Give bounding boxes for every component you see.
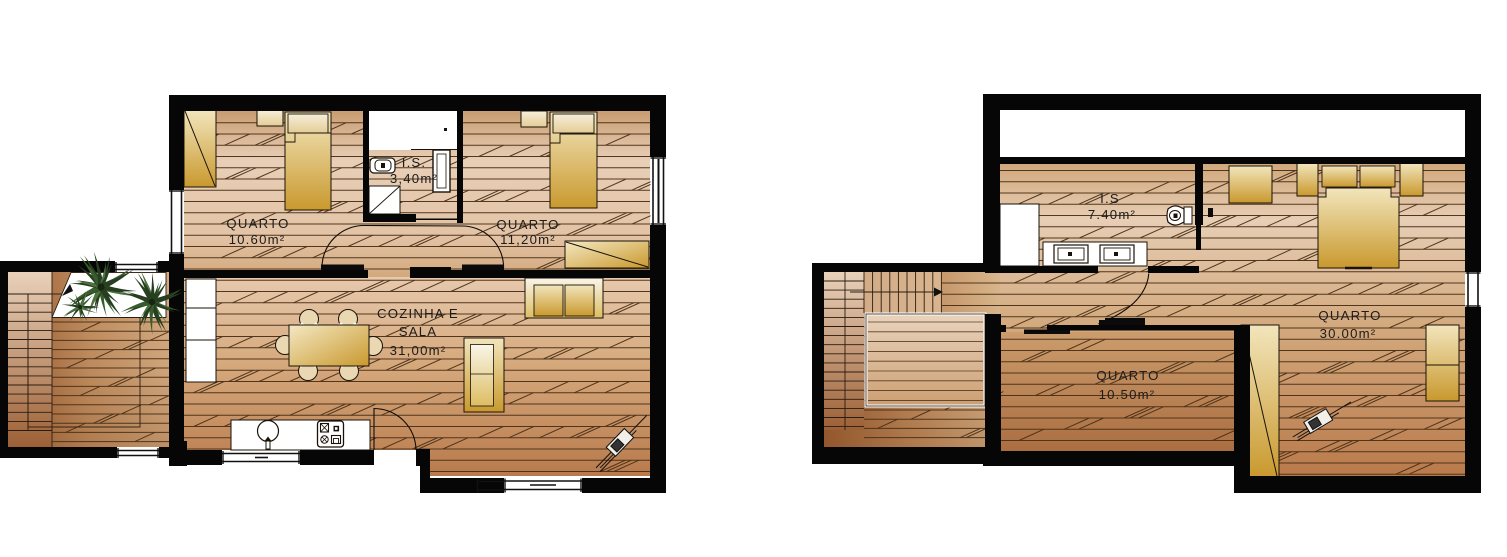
svg-text:QUARTO: QUARTO: [1096, 368, 1159, 383]
svg-text:SALA: SALA: [399, 324, 438, 339]
svg-text:I.S.: I.S.: [402, 155, 427, 170]
svg-text:7.40m²: 7.40m²: [1088, 207, 1136, 222]
svg-text:I.S: I.S: [1100, 191, 1120, 206]
svg-text:10.60m²: 10.60m²: [229, 232, 286, 247]
svg-text:QUARTO: QUARTO: [226, 216, 289, 231]
svg-text:3,40m²: 3,40m²: [390, 171, 438, 186]
svg-text:31,00m²: 31,00m²: [390, 343, 447, 358]
svg-text:11,20m²: 11,20m²: [500, 232, 556, 247]
svg-text:30.00m²: 30.00m²: [1320, 326, 1377, 341]
svg-text:COZINHA E: COZINHA E: [377, 306, 459, 321]
svg-text:QUARTO: QUARTO: [1318, 308, 1381, 323]
svg-text:QUARTO: QUARTO: [496, 217, 559, 232]
svg-text:10.50m²: 10.50m²: [1099, 387, 1156, 402]
